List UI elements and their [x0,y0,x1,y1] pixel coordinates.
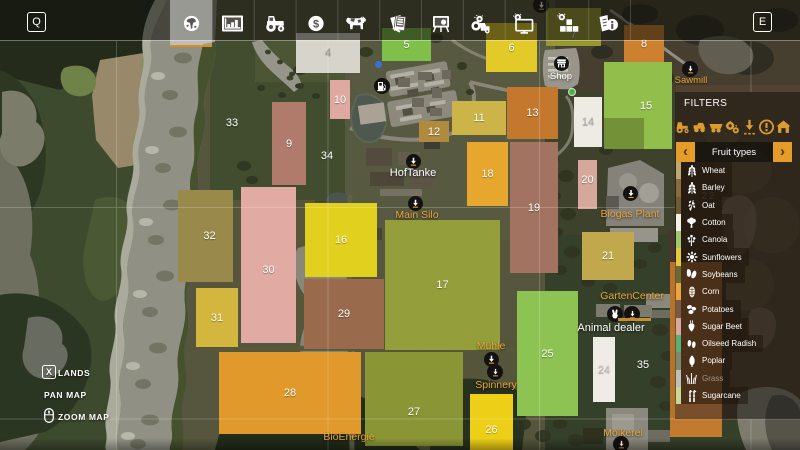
svg-text:$: $ [313,18,319,30]
